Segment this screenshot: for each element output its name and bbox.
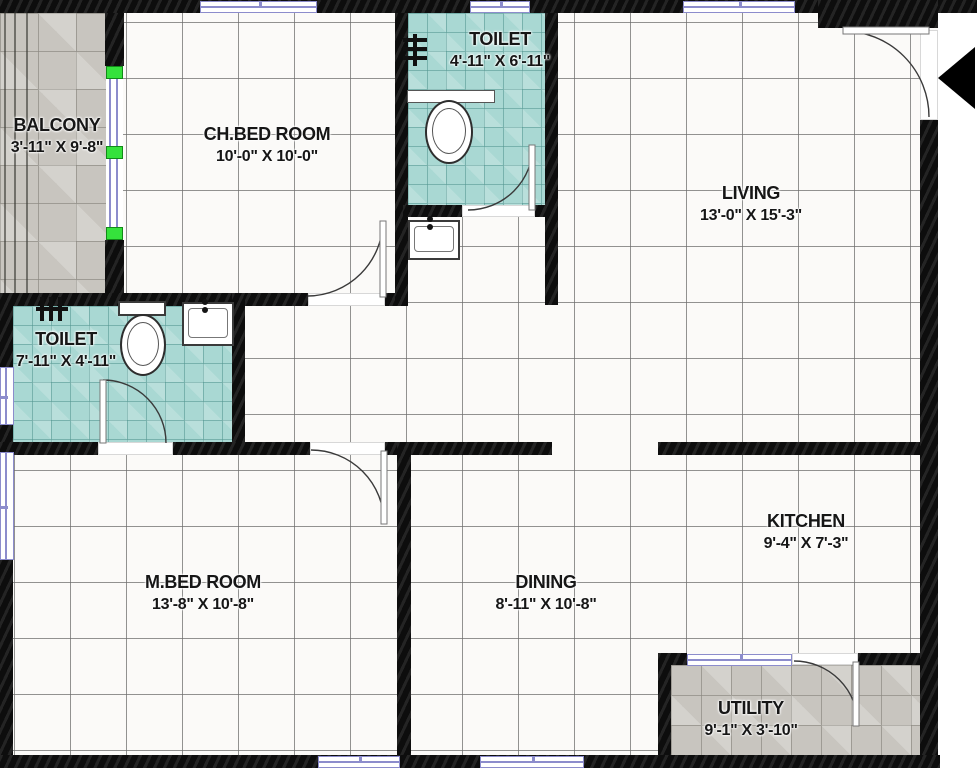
slider-marker-icon — [106, 66, 123, 79]
room-name: LIVING — [646, 183, 856, 204]
room-name: CH.BED ROOM — [162, 124, 372, 145]
door-utility-leaf — [853, 662, 859, 726]
tap-icon — [202, 299, 208, 305]
door-entry-arc — [843, 31, 929, 117]
wash-basin-corridor — [408, 220, 460, 260]
door-chbed-arc — [308, 221, 383, 296]
door-chbed-leaf — [380, 221, 386, 297]
tap-icon — [427, 224, 433, 230]
room-dims: 9'-4" X 7'-3" — [701, 535, 911, 553]
room-name: TOILET — [415, 29, 585, 50]
label-toilet-common: TOILET 4'-11" X 6'-11" — [415, 29, 585, 71]
room-dims: 9'-1" X 3'-10" — [656, 722, 846, 740]
room-dims: 13'-8" X 10'-8" — [98, 596, 308, 614]
shower-mixer-icon — [36, 296, 70, 322]
wash-basin-toilet-master — [182, 302, 234, 346]
door-toilet-common-arc — [468, 145, 533, 210]
label-toilet-master: TOILET 7'-11" X 4'-11" — [0, 329, 132, 371]
tap-icon — [202, 307, 208, 313]
label-ch-bed-room: CH.BED ROOM 10'-0" X 10'-0" — [162, 124, 372, 166]
label-dining: DINING 8'-11" X 10'-8" — [441, 572, 651, 614]
floor-plan: BALCONY 3'-11" X 9'-8" CH.BED ROOM 10'-0… — [0, 0, 977, 768]
room-dims: 10'-0" X 10'-0" — [162, 148, 372, 166]
label-living: LIVING 13'-0" X 15'-3" — [646, 183, 856, 225]
room-dims: 4'-11" X 6'-11" — [415, 53, 585, 71]
tap-icon — [427, 216, 433, 222]
slider-marker-icon — [106, 227, 123, 240]
label-m-bed-room: M.BED ROOM 13'-8" X 10'-8" — [98, 572, 308, 614]
room-dims: 7'-11" X 4'-11" — [0, 353, 132, 371]
door-toilet-master-leaf — [100, 380, 106, 443]
label-kitchen: KITCHEN 9'-4" X 7'-3" — [701, 511, 911, 553]
room-name: TOILET — [0, 329, 132, 350]
wc-toilet-common — [425, 100, 473, 164]
door-entry-leaf — [843, 27, 929, 34]
room-dims: 13'-0" X 15'-3" — [646, 207, 856, 225]
door-mbed-arc — [311, 450, 384, 523]
room-name: UTILITY — [656, 698, 846, 719]
room-name: KITCHEN — [701, 511, 911, 532]
door-mbed-leaf — [381, 451, 387, 524]
room-dims: 8'-11" X 10'-8" — [441, 596, 651, 614]
room-name: BALCONY — [2, 115, 112, 136]
door-swing-layer — [0, 0, 977, 768]
label-utility: UTILITY 9'-1" X 3'-10" — [656, 698, 846, 740]
room-name: DINING — [441, 572, 651, 593]
label-balcony: BALCONY 3'-11" X 9'-8" — [2, 115, 112, 157]
room-dims: 3'-11" X 9'-8" — [2, 139, 112, 157]
door-toilet-common-leaf — [529, 145, 535, 210]
room-name: M.BED ROOM — [98, 572, 308, 593]
door-toilet-master-arc — [103, 380, 166, 443]
